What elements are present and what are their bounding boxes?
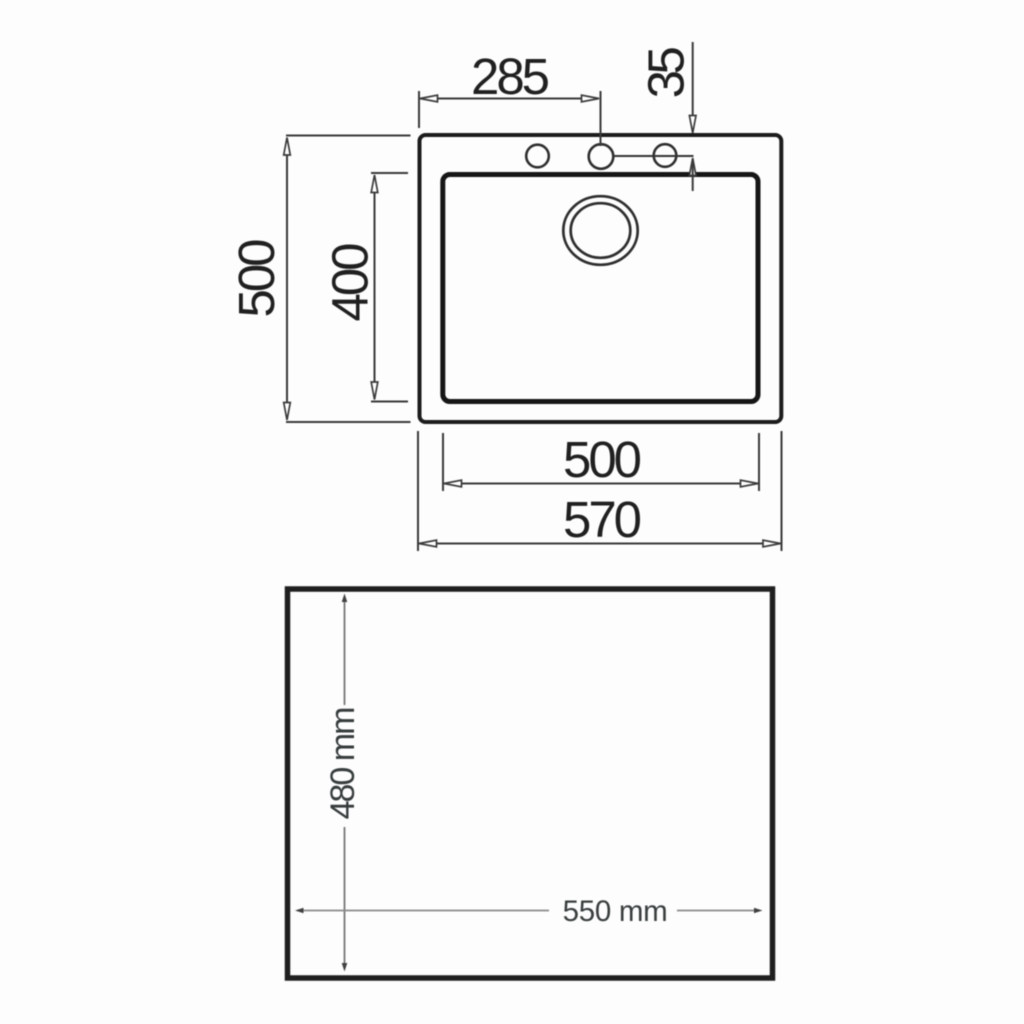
svg-text:480 mm: 480 mm: [324, 708, 362, 819]
svg-text:550 mm: 550 mm: [563, 895, 668, 928]
svg-text:500: 500: [563, 431, 641, 488]
svg-text:400: 400: [322, 244, 379, 322]
svg-text:500: 500: [228, 240, 285, 318]
svg-text:35: 35: [638, 48, 695, 99]
svg-text:570: 570: [563, 491, 641, 548]
svg-text:285: 285: [471, 48, 549, 105]
